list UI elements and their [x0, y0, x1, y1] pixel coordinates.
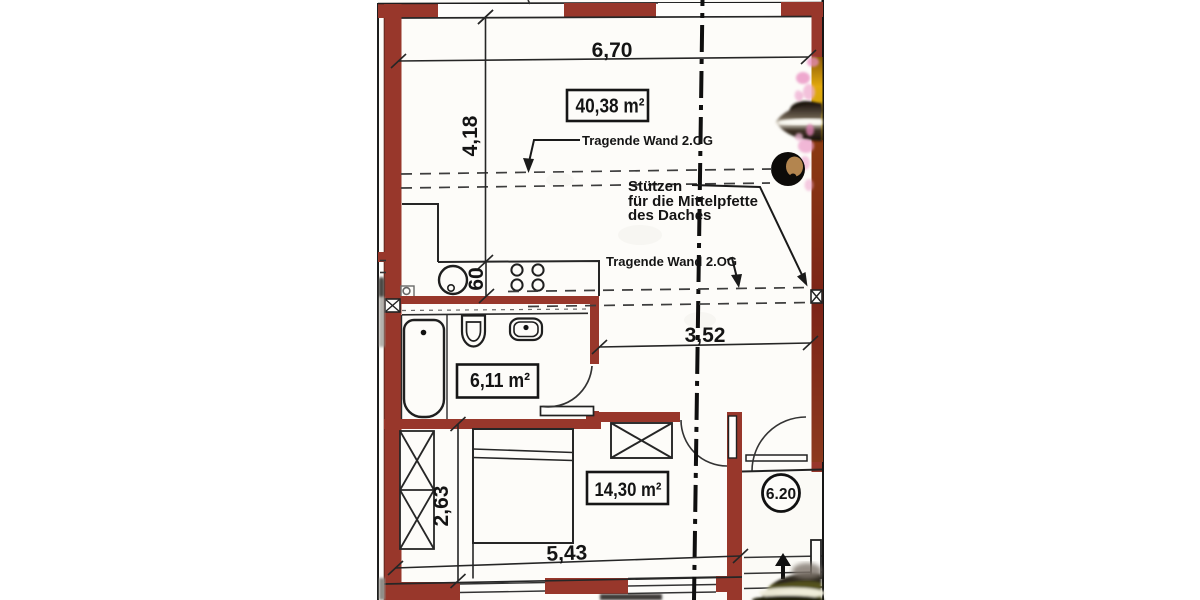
svg-text:40,38 m²: 40,38 m²: [576, 96, 645, 118]
svg-text:Tragende Wand 2.OG: Tragende Wand 2.OG: [606, 254, 737, 269]
svg-text:5,43: 5,43: [546, 541, 588, 565]
svg-text:3,52: 3,52: [685, 324, 726, 347]
svg-text:14,30 m²: 14,30 m²: [595, 480, 662, 501]
svg-text:Tragende Wand 2.OG: Tragende Wand 2.OG: [582, 133, 713, 148]
svg-text:6,11 m²: 6,11 m²: [470, 370, 530, 392]
svg-text:6,70: 6,70: [592, 39, 633, 62]
svg-text:6.20: 6.20: [766, 486, 796, 503]
svg-text:des Daches: des Daches: [628, 207, 711, 224]
svg-text:2,63: 2,63: [430, 486, 453, 527]
svg-text:60: 60: [465, 267, 488, 290]
svg-text:4,18: 4,18: [459, 115, 482, 156]
